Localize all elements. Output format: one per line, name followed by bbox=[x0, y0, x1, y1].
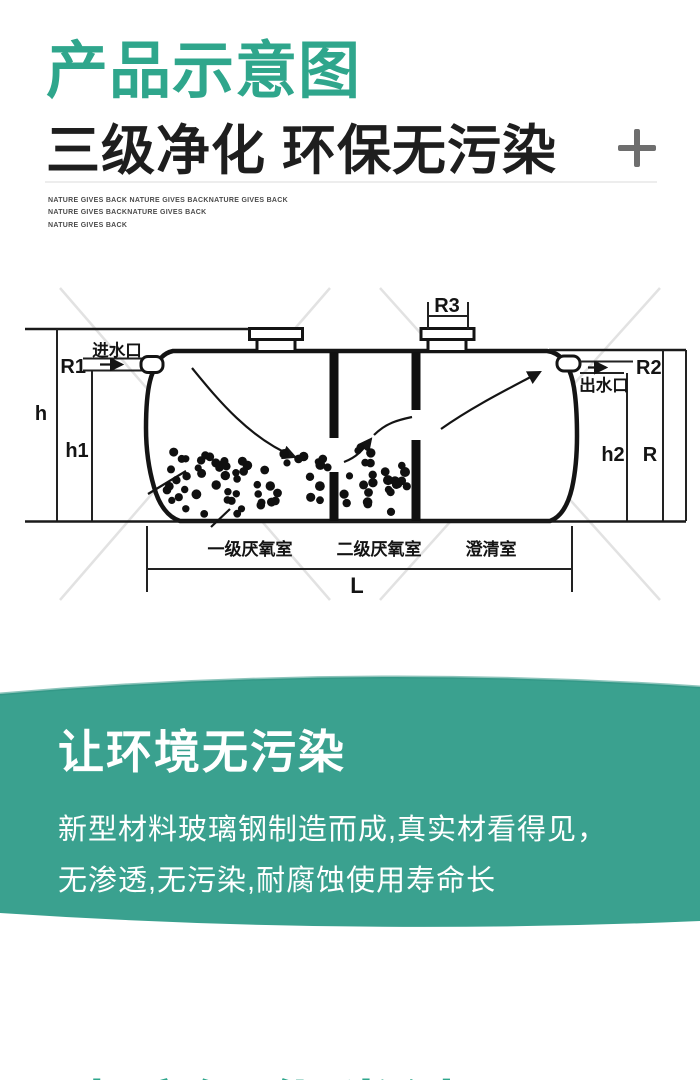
h1-label: h1 bbox=[65, 440, 88, 462]
r1-label: R1 bbox=[60, 356, 86, 378]
chamber-2-label: 二级厌氧室 bbox=[337, 539, 422, 559]
baffle-1 bbox=[330, 352, 339, 521]
tank-schematic-diagram: R3 bbox=[0, 270, 700, 610]
plus-icon bbox=[618, 129, 656, 167]
tagline-line: NATURE GIVES BACK NATURE GIVES BACKNATUR… bbox=[48, 195, 468, 207]
tagline-block: NATURE GIVES BACK NATURE GIVES BACKNATUR… bbox=[48, 195, 468, 232]
chamber-3-label: 澄清室 bbox=[466, 539, 517, 559]
benefit-line: 无渗透,无污染,耐腐蚀使用寿命长 bbox=[58, 857, 658, 899]
next-section-title-partial: 玻璃钢化粪池 bbox=[52, 1058, 472, 1080]
r-label: R bbox=[643, 444, 658, 466]
divider bbox=[45, 181, 657, 183]
l-label: L bbox=[350, 573, 363, 598]
main-heading: 三级净化 环保无污染 bbox=[46, 106, 557, 185]
outlet-pipe bbox=[557, 356, 633, 373]
h2-label: h2 bbox=[601, 444, 624, 466]
manhole-1 bbox=[250, 329, 303, 352]
section-title: 产品示意图 bbox=[46, 20, 361, 110]
dim-r3: R3 bbox=[428, 295, 468, 329]
h-label: h bbox=[35, 403, 47, 425]
r2-label: R2 bbox=[636, 357, 662, 379]
manhole-2 bbox=[421, 329, 474, 352]
outlet-label: 出水口 bbox=[579, 375, 629, 395]
tagline-line: NATURE GIVES BACK bbox=[48, 220, 468, 232]
benefit-line: 新型材料玻璃钢制造而成,真实材看得见， bbox=[58, 806, 658, 848]
inlet-label: 进水口 bbox=[92, 340, 142, 360]
product-detail-page: 产品示意图 三级净化 环保无污染 NATURE GIVES BACK NATUR… bbox=[0, 0, 700, 1080]
tagline-line: NATURE GIVES BACKNATURE GIVES BACK bbox=[48, 207, 468, 219]
chamber-1-label: 一级厌氧室 bbox=[208, 539, 293, 559]
r3-label: R3 bbox=[434, 295, 460, 317]
benefit-heading: 让环境无污染 bbox=[58, 716, 346, 782]
tank-body bbox=[146, 351, 577, 521]
